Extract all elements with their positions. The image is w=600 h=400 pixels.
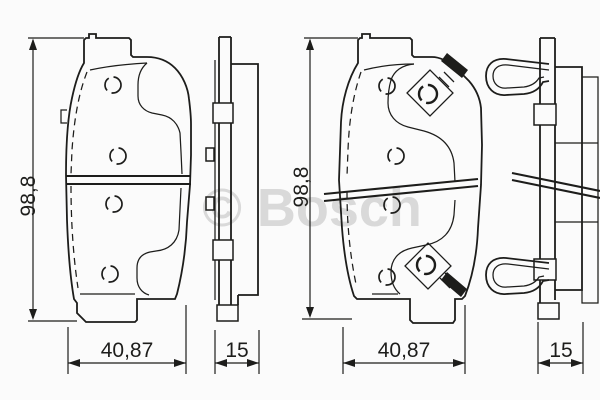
friction-edge-dashed (71, 72, 87, 174)
dimension-left-thickness: 15 (215, 330, 259, 374)
dimension-label-width-left: 40,87 (101, 339, 154, 362)
dimension-right-width: 40,87 (343, 305, 465, 374)
friction-step-upper (138, 63, 182, 174)
dimension-label-height-right: 98,8 (290, 167, 313, 208)
wear-indicator-body (407, 70, 453, 116)
pad-hole (110, 148, 126, 164)
retainer-clip (534, 104, 556, 125)
edge-tab (206, 148, 214, 161)
wear-indicator-leads (439, 72, 454, 87)
wear-indicator-contact (441, 272, 467, 297)
friction-step-lower (137, 188, 181, 295)
pad-hole (105, 77, 121, 93)
friction-edge-dashed (71, 186, 78, 288)
dimension-label-height-left: 98,8 (17, 176, 40, 217)
wear-indicator-eyelet (419, 85, 437, 103)
pad-hole (102, 266, 118, 282)
dimension-left-height: 98,8 (17, 38, 84, 321)
pad-hole (388, 148, 404, 164)
pad-hole (379, 78, 395, 94)
dimension-right-thickness: 15 (538, 322, 583, 374)
pad-hole (379, 269, 395, 285)
dimension-label-width-right: 40,87 (378, 339, 431, 362)
friction-edge-dashed (347, 72, 361, 176)
pad-edge-tab (61, 110, 67, 123)
friction-edge (90, 63, 147, 70)
backplate-profile (219, 37, 231, 305)
dimension-label-thickness-left: 15 (225, 339, 248, 362)
edge-tab (206, 197, 214, 210)
wear-indicator-top (407, 53, 468, 116)
drawing-svg: © Bosch (0, 0, 600, 400)
wear-indicator-bottom (405, 243, 467, 297)
friction-profile (555, 67, 582, 290)
right-pad-side-view (486, 38, 600, 319)
pad-hole (106, 196, 122, 212)
dimension-label-thickness-right: 15 (549, 339, 572, 362)
left-pad-front-view (61, 34, 191, 322)
retainer-clip (213, 103, 233, 123)
backplate-foot (538, 303, 559, 319)
retainer-clip (213, 240, 233, 260)
wear-indicator-contact (441, 53, 468, 78)
backplate-foot (217, 305, 238, 321)
dimension-left-width: 40,87 (68, 305, 186, 374)
brake-pad-technical-drawing: © Bosch (0, 0, 600, 400)
wear-indicator-eyelet (417, 256, 435, 274)
